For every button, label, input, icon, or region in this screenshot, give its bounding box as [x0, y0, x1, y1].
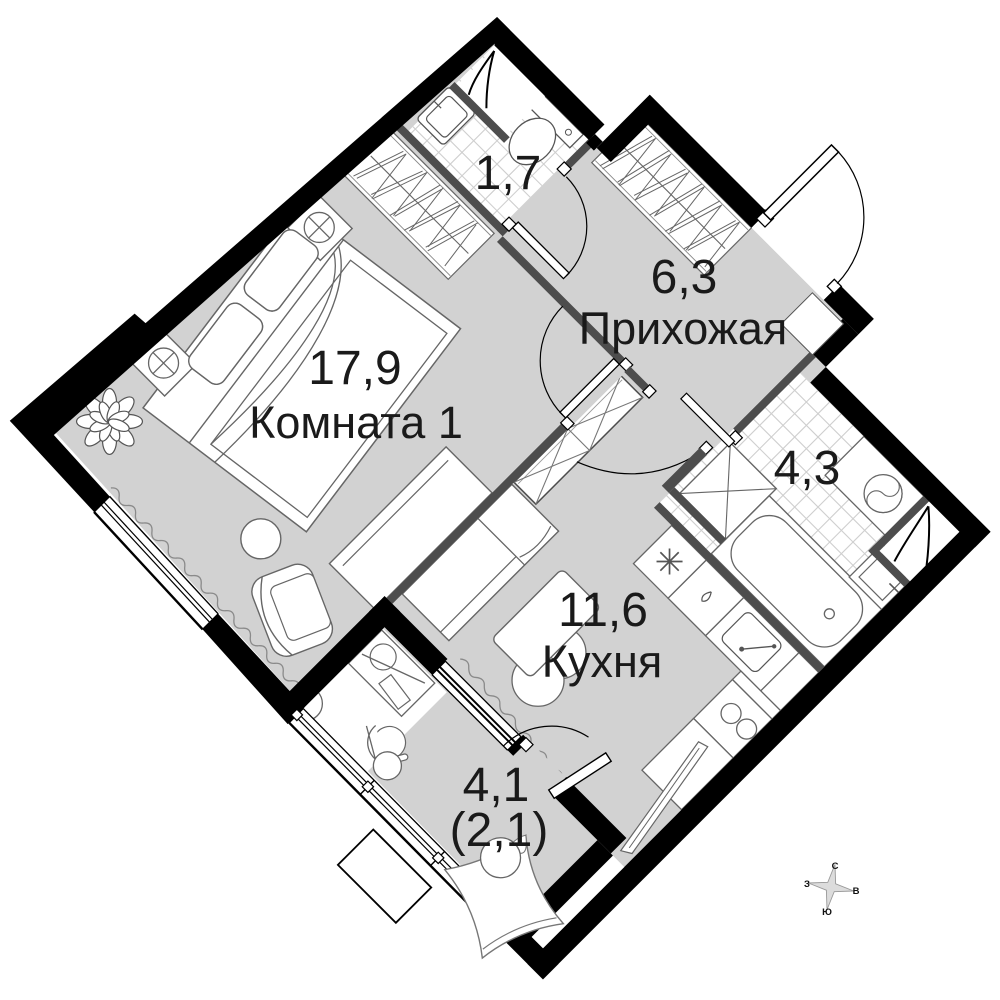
svg-text:З: З: [804, 879, 810, 890]
svg-text:11,6: 11,6: [558, 584, 648, 637]
svg-text:4,3: 4,3: [774, 442, 841, 495]
svg-text:Прихожая: Прихожая: [579, 303, 788, 354]
svg-text:6,3: 6,3: [651, 251, 718, 304]
svg-text:Кухня: Кухня: [542, 636, 662, 687]
svg-text:Комната 1: Комната 1: [249, 397, 463, 448]
svg-text:С: С: [832, 861, 839, 872]
svg-text:Ю: Ю: [822, 907, 832, 918]
svg-text:(2,1): (2,1): [450, 804, 549, 857]
svg-text:1,7: 1,7: [475, 147, 542, 200]
svg-text:В: В: [853, 886, 860, 897]
svg-text:17,9: 17,9: [308, 342, 401, 395]
